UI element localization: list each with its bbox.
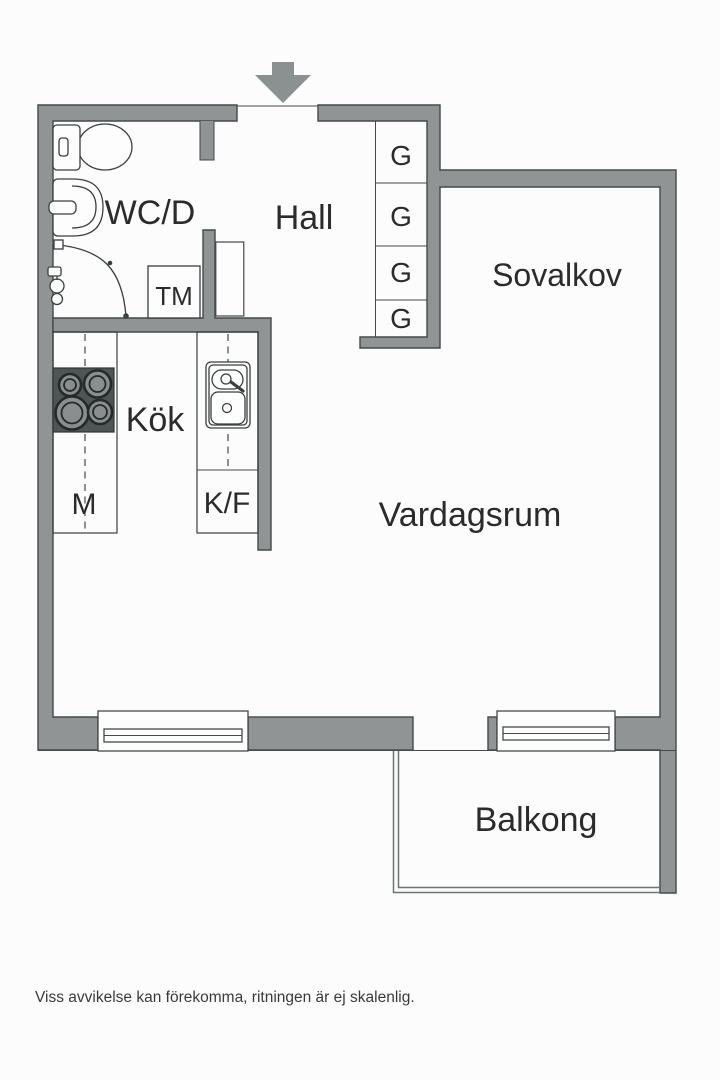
shower-screen-end [54,240,63,249]
room-label-wc: WC/D [105,194,196,232]
wall-balcony-jamb [488,717,497,750]
disclaimer-text: Viss avvikelse kan förekomma, ritningen … [35,989,415,1006]
stove-icon [53,368,114,432]
room-label-hall: Hall [275,199,334,237]
microwave-label: M [72,488,97,521]
sink-tap-icon [49,201,76,214]
room-label-kok: Kök [126,401,186,439]
room-label-sovalkov: Sovalkov [492,257,622,293]
wardrobe-label-1: G [390,140,412,171]
toilet-bowl-icon [78,124,132,170]
wardrobe-label-2: G [390,201,412,232]
wall-stub-entry [200,121,214,160]
window-left [98,711,248,751]
room-label-vardagsrum: Vardagsrum [379,496,562,534]
floor-plan-page: G G G G TM WC/D [0,0,720,1080]
shower-screen-foot [123,313,129,319]
wardrobe-label-3: G [390,257,412,288]
floor-plan: G G G G TM WC/D [0,0,720,1080]
wall-bottom-middle [248,717,413,750]
shower-screen-hinge [108,261,113,266]
wardrobe-label-4: G [390,303,412,334]
window-balcony [497,711,615,751]
toilet-button-icon [59,138,68,156]
washing-machine-label: TM [155,281,193,311]
door-leaf [216,242,244,316]
fridge-freezer-label: K/F [204,487,251,520]
kitchen-sink-icon [206,362,250,428]
room-label-balkong: Balkong [475,801,598,839]
